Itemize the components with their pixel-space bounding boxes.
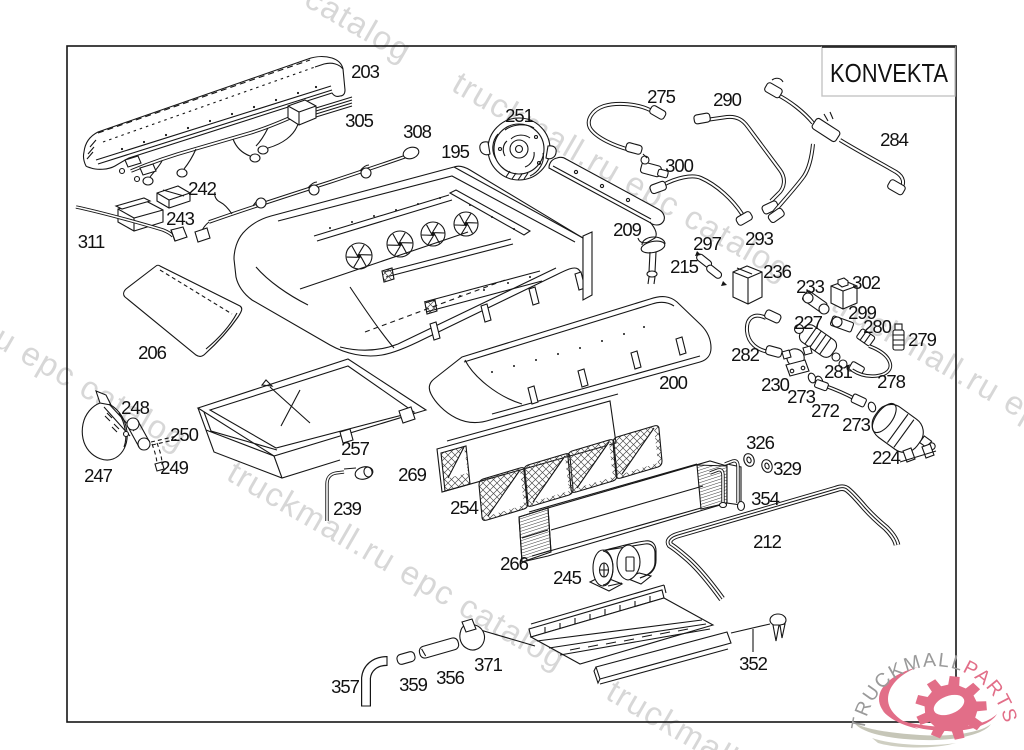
svg-text:242: 242 [188, 178, 217, 199]
svg-text:290: 290 [713, 89, 742, 110]
svg-text:248: 248 [121, 397, 150, 418]
svg-text:236: 236 [763, 261, 792, 282]
svg-text:KONVEKTA: KONVEKTA [830, 58, 949, 88]
svg-text:329: 329 [773, 458, 802, 479]
svg-text:278: 278 [877, 371, 906, 392]
svg-text:371: 371 [474, 654, 503, 675]
svg-text:239: 239 [333, 498, 362, 519]
svg-text:326: 326 [746, 432, 775, 453]
svg-text:311: 311 [78, 231, 105, 252]
svg-text:280: 280 [863, 316, 892, 337]
svg-text:272: 272 [811, 400, 840, 421]
svg-text:308: 308 [403, 121, 432, 142]
svg-text:230: 230 [761, 374, 790, 395]
svg-text:209: 209 [613, 219, 642, 240]
svg-text:357: 357 [331, 676, 360, 697]
svg-text:245: 245 [553, 567, 582, 588]
svg-text:305: 305 [345, 110, 374, 131]
svg-text:284: 284 [880, 129, 909, 150]
svg-text:250: 250 [170, 424, 199, 445]
svg-text:354: 354 [751, 488, 780, 509]
svg-text:243: 243 [166, 208, 195, 229]
svg-text:275: 275 [647, 86, 676, 107]
svg-text:224: 224 [872, 447, 901, 468]
svg-text:300: 300 [665, 155, 694, 176]
svg-text:266: 266 [500, 553, 529, 574]
svg-text:203: 203 [351, 61, 380, 82]
svg-text:212: 212 [753, 531, 782, 552]
svg-text:227: 227 [794, 312, 823, 333]
svg-text:293: 293 [745, 228, 774, 249]
svg-text:247: 247 [84, 465, 113, 486]
svg-text:206: 206 [138, 342, 167, 363]
svg-text:249: 249 [160, 457, 189, 478]
svg-text:200: 200 [659, 372, 688, 393]
svg-text:356: 356 [436, 667, 465, 688]
svg-text:273: 273 [842, 414, 871, 435]
svg-text:233: 233 [796, 276, 825, 297]
svg-text:269: 269 [398, 464, 427, 485]
svg-text:279: 279 [908, 329, 937, 350]
svg-text:302: 302 [852, 272, 881, 293]
svg-text:215: 215 [670, 256, 699, 277]
svg-text:297: 297 [693, 233, 722, 254]
svg-text:281: 281 [824, 361, 853, 382]
svg-text:251: 251 [505, 105, 534, 126]
svg-text:352: 352 [739, 653, 768, 674]
svg-text:257: 257 [341, 438, 370, 459]
svg-text:282: 282 [731, 344, 760, 365]
svg-text:359: 359 [399, 674, 428, 695]
svg-text:195: 195 [441, 141, 470, 162]
svg-text:254: 254 [450, 497, 479, 518]
